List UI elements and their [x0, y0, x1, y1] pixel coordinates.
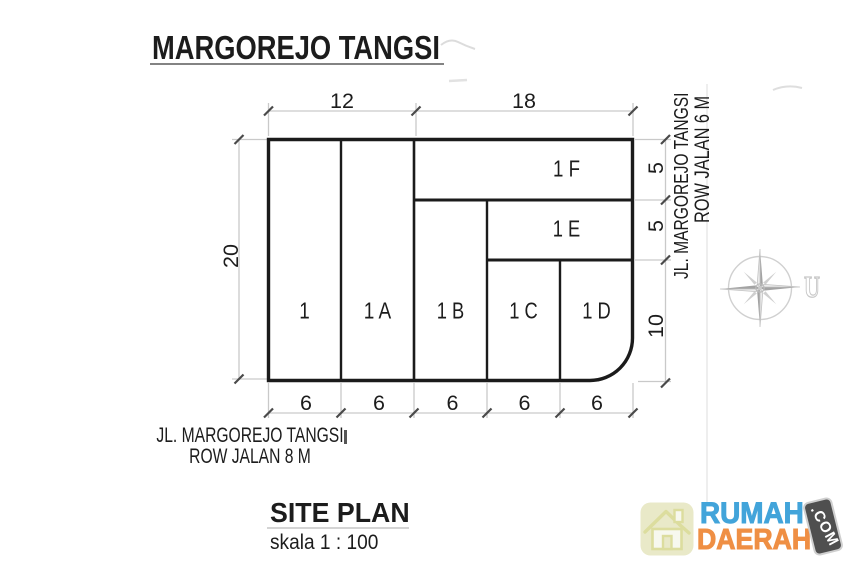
svg-text:6: 6	[300, 391, 312, 415]
svg-text:U: U	[804, 269, 820, 304]
svg-text:6: 6	[447, 391, 459, 415]
svg-text:18: 18	[512, 89, 536, 113]
svg-text:1 F: 1 F	[553, 156, 580, 182]
svg-text:1 C: 1 C	[509, 298, 538, 324]
svg-text:1 D: 1 D	[582, 298, 611, 324]
svg-text:10: 10	[644, 314, 668, 338]
svg-text:1 E: 1 E	[553, 216, 581, 242]
svg-text:20: 20	[219, 244, 243, 268]
svg-text:1 A: 1 A	[364, 298, 392, 324]
svg-text:12: 12	[330, 89, 354, 113]
svg-text:5: 5	[644, 220, 668, 232]
svg-text:6: 6	[519, 391, 531, 415]
svg-text:1: 1	[299, 298, 310, 324]
svg-text:1 B: 1 B	[437, 298, 465, 324]
svg-text:5: 5	[644, 162, 668, 174]
svg-text:6: 6	[373, 391, 385, 415]
svg-text:6: 6	[591, 391, 603, 415]
